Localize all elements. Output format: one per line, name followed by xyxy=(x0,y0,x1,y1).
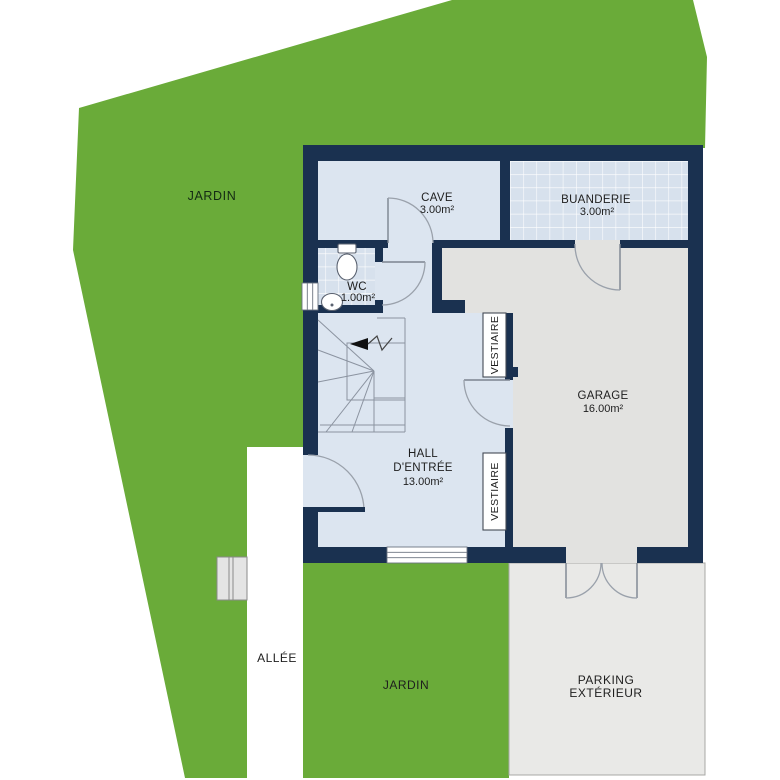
hall-name-label-line2: D'ENTRÉE xyxy=(393,461,453,474)
cave-name-label: CAVE xyxy=(421,192,453,204)
vestiaire-lower-label: VESTIAIRE xyxy=(489,462,501,520)
floor-plan-svg: JARDIN JARDIN ALLÉE PARKING EXTÉRIEUR CA… xyxy=(0,0,780,780)
cave-opening xyxy=(388,240,433,248)
window-west xyxy=(302,283,318,310)
parking-label-line1: PARKING xyxy=(578,673,635,687)
parking-area xyxy=(509,563,705,775)
allee-label: ALLÉE xyxy=(257,650,297,665)
hall-area-label: 13.00m² xyxy=(403,476,444,488)
vestiaire-upper-label: VESTIAIRE xyxy=(489,316,501,374)
jardin-top-label: JARDIN xyxy=(188,189,237,203)
parking-label-line2: EXTÉRIEUR xyxy=(569,685,642,700)
buanderie-opening xyxy=(575,240,620,248)
hall-garage-opening xyxy=(505,380,513,428)
sink-icon xyxy=(322,294,343,311)
entry-opening xyxy=(303,455,318,511)
window-south xyxy=(387,547,467,563)
jardin-bottom-label: JARDIN xyxy=(383,678,429,692)
alley-path xyxy=(247,447,303,780)
buanderie-area-label: 3.00m² xyxy=(580,206,615,218)
wc-opening xyxy=(375,262,383,300)
cave-floor xyxy=(318,161,500,240)
cave-area-label: 3.00m² xyxy=(420,204,455,216)
garage-gate-opening xyxy=(566,547,637,563)
outdoor-steps xyxy=(217,557,247,600)
floor-plan-canvas: JARDIN JARDIN ALLÉE PARKING EXTÉRIEUR CA… xyxy=(0,0,780,780)
wc-area-label: 1.00m² xyxy=(341,292,376,304)
buanderie-name-label: BUANDERIE xyxy=(561,194,631,206)
toilet-icon xyxy=(337,244,357,280)
hall-name-label-line1: HALL xyxy=(408,448,438,460)
garage-area-label: 16.00m² xyxy=(583,403,624,415)
garage-name-label: GARAGE xyxy=(577,390,628,402)
